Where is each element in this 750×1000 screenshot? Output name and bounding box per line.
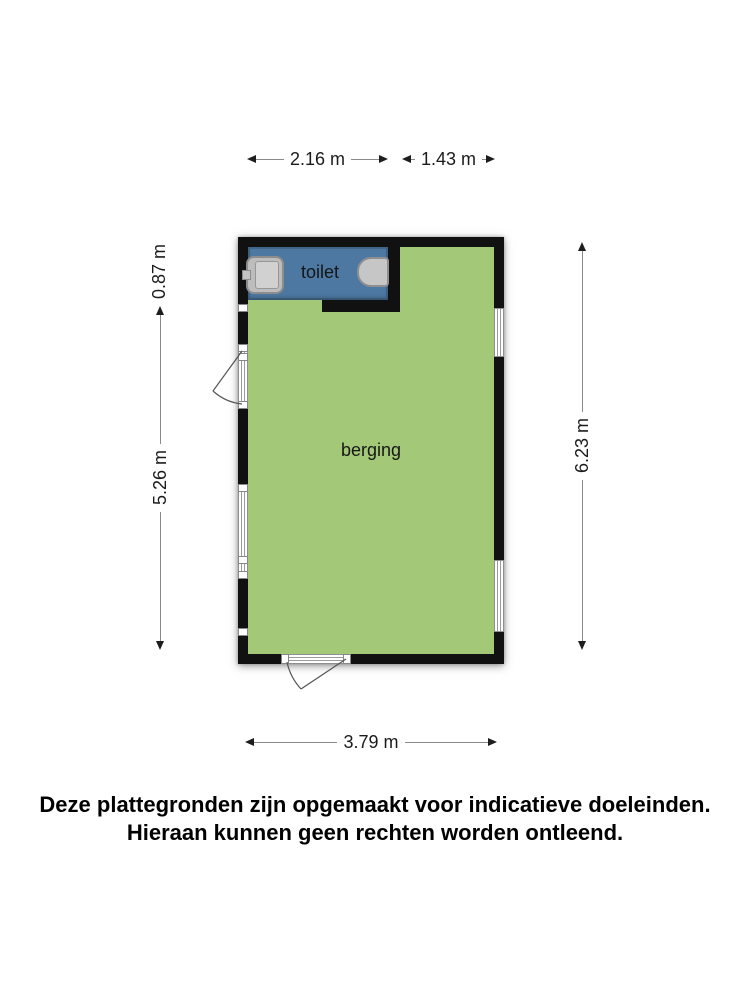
arrow-up-icon [156,306,164,315]
dimension-label: 0.87 m [150,238,168,305]
door-bottom [285,654,347,664]
dimension-label: 3.79 m [337,733,404,751]
wall-toilet-bottom [322,300,400,312]
floorplan-page: 2.16 m 1.43 m 0.87 m 5.26 m 6.23 m 3.79 … [0,0,750,1000]
arrow-down-icon [578,641,586,650]
arrow-up-icon [578,242,586,251]
sink-icon [246,256,284,294]
dimension-label: 2.16 m [284,150,351,168]
dimension-line [582,251,583,412]
room-label-berging: berging [321,441,421,460]
dimension-left-lower: 5.26 m [151,306,169,650]
arrow-right-icon [379,155,388,163]
dimension-bottom: 3.79 m [245,733,497,751]
sink-basin-icon [255,261,279,289]
dimension-line [405,742,488,743]
dimension-label: 6.23 m [573,412,591,479]
toilet-bowl-icon [357,257,389,287]
dimension-left-upper: 0.87 m [150,236,168,308]
window-jamb-icon [238,484,248,492]
dimension-line [256,159,284,160]
window-jamb-icon [238,556,248,564]
dimension-top-left: 2.16 m [247,150,388,168]
dimension-line [582,480,583,641]
dimension-line [351,159,379,160]
room-label-toilet: toilet [280,263,360,282]
window-jamb-icon [238,571,248,579]
window-right-upper [494,308,504,357]
door-jamb-icon [281,654,289,664]
disclaimer-line-1: Deze plattegronden zijn opgemaakt voor i… [0,791,750,819]
arrow-down-icon [156,641,164,650]
dimension-label: 5.26 m [151,444,169,511]
window-jamb-icon [238,304,248,312]
dimension-line [160,512,161,641]
arrow-right-icon [488,738,497,746]
door-jamb-icon [238,401,248,409]
arrow-left-icon [245,738,254,746]
dimension-line [254,742,337,743]
dimension-label: 1.43 m [415,150,482,168]
disclaimer-line-2: Hieraan kunnen geen rechten worden ontle… [0,819,750,847]
door-jamb-icon [343,654,351,664]
arrow-right-icon [486,155,495,163]
faucet-icon [242,270,251,280]
disclaimer: Deze plattegronden zijn opgemaakt voor i… [0,791,750,847]
window-jamb-icon [238,353,248,361]
dimension-line [160,315,161,444]
window-jamb-icon [238,628,248,636]
dimension-top-right: 1.43 m [402,150,495,168]
dimension-right: 6.23 m [573,242,591,650]
floorplan: toilet berging [238,237,504,664]
window-right-lower [494,560,504,632]
door-jamb-icon [238,344,248,352]
arrow-left-icon [247,155,256,163]
arrow-left-icon [402,155,411,163]
